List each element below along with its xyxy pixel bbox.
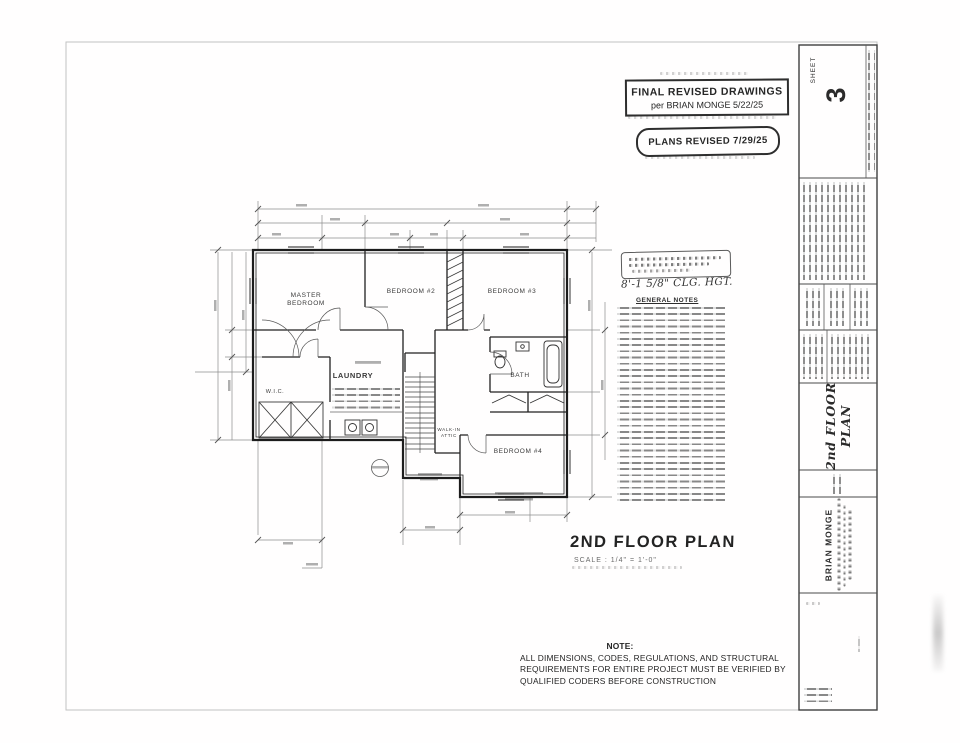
room-label-master: MASTER BEDROOM <box>278 292 334 308</box>
titleblock-cell-smudge <box>831 334 873 379</box>
stamp-line: per BRIAN MONGE 5/22/25 <box>627 99 787 110</box>
plan-scale: SCALE : 1/4" = 1'-0" <box>574 557 657 564</box>
final-revised-stamp: FINAL REVISED DRAWINGS per BRIAN MONGE 5… <box>625 78 789 116</box>
note-line: ALL DIMENSIONS, CODES, REGULATIONS, AND … <box>520 653 795 665</box>
stamp-line: PLANS REVISED 7/29/25 <box>648 135 767 148</box>
room-label-wic: W.I.C. <box>262 388 288 396</box>
scan-scribble <box>660 72 750 75</box>
titleblock-drawing-title: 2nd FLOOR PLAN <box>810 376 866 476</box>
titleblock-cell-smudge <box>830 288 846 326</box>
titleblock-cell-smudge <box>854 288 872 326</box>
note-line: QUALIFIED CODERS BEFORE CONSTRUCTION <box>520 676 795 688</box>
stamp-line: FINAL REVISED DRAWINGS <box>627 85 787 98</box>
general-notes-header: GENERAL NOTES <box>636 297 698 304</box>
titleblock-mark <box>858 636 864 652</box>
titleblock-mark <box>804 688 832 702</box>
general-notes-text <box>617 307 725 503</box>
scale-underline-smudge <box>572 566 682 569</box>
plans-revised-stamp: PLANS REVISED 7/29/25 <box>636 126 780 158</box>
room-label-bedroom3: BEDROOM #3 <box>487 288 537 296</box>
note-label: NOTE: <box>520 641 720 653</box>
approval-stamp <box>621 250 732 279</box>
titleblock-cell-smudge <box>806 288 820 326</box>
sheet-number: 3 <box>811 55 861 135</box>
client-address-smudge <box>838 499 841 591</box>
scan-scribble <box>645 156 755 159</box>
room-label-laundry: LAUNDRY <box>330 372 376 380</box>
note-line: REQUIREMENTS FOR ENTIRE PROJECT MUST BE … <box>520 664 795 676</box>
plan-notes-smudge <box>332 388 400 410</box>
room-label-bath: BATH <box>505 372 535 380</box>
titleblock-mark <box>806 602 820 605</box>
plan-title: 2ND FLOOR PLAN <box>570 533 737 552</box>
room-label-bedroom2: BEDROOM #2 <box>386 288 436 296</box>
titleblock-cell-smudge <box>803 334 823 379</box>
drawing-sheet: FINAL REVISED DRAWINGS per BRIAN MONGE 5… <box>0 0 960 743</box>
client-address-smudge <box>843 503 846 587</box>
revision-table-smudge <box>803 182 865 280</box>
titleblock-date-smudge <box>868 50 875 172</box>
scan-artifact <box>933 595 943 671</box>
illegible-text <box>632 269 692 273</box>
bottom-note: NOTE: ALL DIMENSIONS, CODES, REGULATIONS… <box>520 641 795 687</box>
room-label-bedroom4: BEDROOM #4 <box>492 448 544 456</box>
scanned-blueprint-page: FINAL REVISED DRAWINGS per BRIAN MONGE 5… <box>0 0 960 743</box>
illegible-text <box>629 262 709 267</box>
room-label-walkin-attic: WALK-IN ATTIC <box>436 427 462 438</box>
titleblock-client-block: BRIAN MONGE <box>808 488 868 603</box>
scan-scribble <box>628 116 778 119</box>
client-address-smudge <box>849 510 852 580</box>
client-name: BRIAN MONGE <box>824 509 834 581</box>
illegible-text <box>629 256 721 261</box>
